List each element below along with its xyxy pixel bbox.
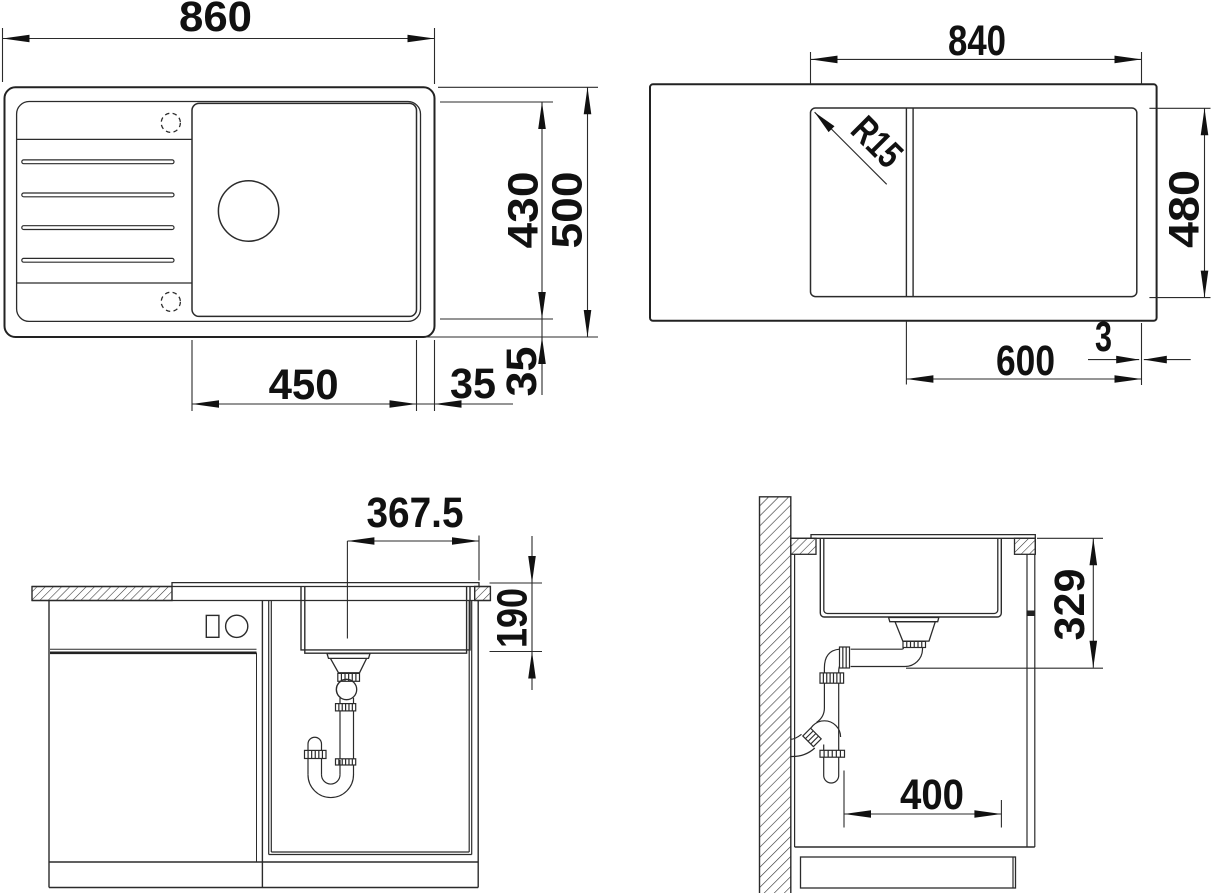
svg-text:840: 840 [948, 17, 1006, 65]
svg-text:3: 3 [1095, 313, 1112, 361]
svg-text:329: 329 [1046, 569, 1094, 641]
svg-text:367.5: 367.5 [367, 489, 464, 537]
svg-text:430: 430 [500, 172, 548, 249]
svg-text:860: 860 [179, 0, 252, 41]
svg-text:35: 35 [498, 347, 546, 397]
svg-text:400: 400 [900, 771, 964, 819]
svg-text:450: 450 [269, 361, 339, 409]
svg-text:600: 600 [996, 337, 1055, 385]
svg-text:500: 500 [544, 172, 592, 249]
svg-text:35: 35 [450, 360, 496, 408]
svg-text:190: 190 [489, 588, 537, 648]
svg-text:480: 480 [1161, 170, 1209, 248]
